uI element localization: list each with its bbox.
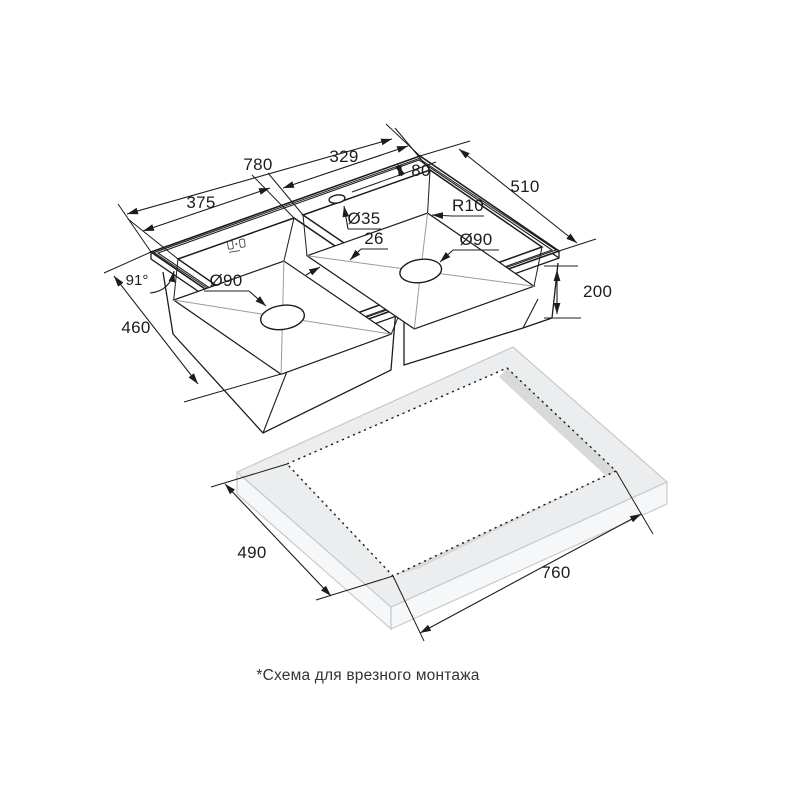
- label-o35-text: Ø35: [347, 209, 380, 228]
- dim-80-label: 80: [411, 161, 431, 180]
- label-r10-text: R10: [452, 196, 484, 215]
- dim-329-label: 329: [329, 147, 358, 166]
- figure-caption: *Схема для врезного монтажа: [256, 667, 479, 684]
- dim-780-label: 780: [243, 155, 272, 174]
- label-faucet-hole: Ø35: [344, 206, 381, 229]
- dim-460-label: 460: [121, 318, 150, 337]
- dim-91-label: 91°: [126, 272, 149, 289]
- dim-510-label: 510: [510, 177, 539, 196]
- label-26-text: 26: [364, 229, 384, 248]
- dim-375-label: 375: [186, 193, 215, 212]
- dim-760-label: 760: [541, 563, 570, 582]
- dim-490-label: 490: [237, 543, 266, 562]
- dim-200-label: 200: [583, 282, 612, 301]
- label-o90-left-text: Ø90: [209, 271, 242, 290]
- label-o90-right-text: Ø90: [459, 230, 492, 249]
- sink-dimension-diagram: 490 760: [0, 0, 800, 800]
- mounting-scheme-page: 490 760: [0, 0, 800, 800]
